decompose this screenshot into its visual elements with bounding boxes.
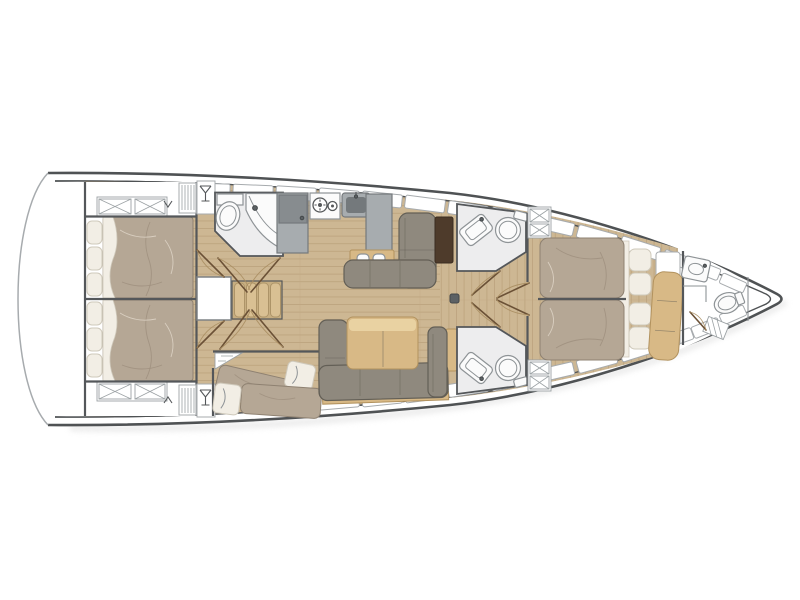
yacht-floorplan bbox=[0, 0, 800, 600]
berth-pillow-lower bbox=[212, 383, 241, 416]
yacht-floorplan-canvas bbox=[0, 0, 800, 600]
mast-post bbox=[450, 294, 459, 303]
pillow bbox=[629, 327, 651, 349]
stove-burner-icon bbox=[313, 198, 327, 212]
pillow bbox=[629, 273, 651, 295]
step bbox=[271, 283, 281, 317]
double-bed bbox=[87, 300, 193, 381]
saloon bbox=[319, 317, 458, 404]
aft-bulkheads bbox=[85, 182, 197, 416]
pillow bbox=[87, 302, 102, 325]
double-bed bbox=[87, 217, 193, 298]
storage-hatch bbox=[97, 197, 167, 216]
storage-hatch bbox=[528, 207, 551, 238]
louvered-cabinet bbox=[179, 385, 196, 415]
stove-burner-icon bbox=[328, 202, 337, 211]
basin bbox=[681, 256, 711, 283]
fridge-handle bbox=[300, 216, 304, 220]
pillow bbox=[87, 247, 102, 270]
transom-platform-edge bbox=[18, 173, 48, 425]
chart-table bbox=[435, 217, 453, 263]
stove bbox=[310, 193, 340, 219]
corridor bbox=[450, 294, 459, 303]
pillow bbox=[629, 249, 651, 271]
l-sofa-aft-arm bbox=[344, 260, 436, 288]
storage-hatch bbox=[97, 382, 167, 401]
louvered-cabinet bbox=[179, 183, 196, 213]
single-berth-lower bbox=[240, 383, 322, 419]
storage-hatch bbox=[528, 360, 551, 391]
engine-access-door bbox=[197, 277, 231, 320]
bed-mattress-starboard bbox=[540, 300, 624, 360]
galley-counter-right bbox=[366, 194, 392, 253]
pillow bbox=[87, 354, 102, 377]
pillow bbox=[87, 221, 102, 244]
dining-table bbox=[347, 317, 418, 369]
u-sofa-right-arm bbox=[428, 327, 447, 397]
faucet bbox=[354, 195, 357, 198]
bed-mattress-port bbox=[540, 238, 624, 298]
step bbox=[259, 283, 269, 317]
pillow bbox=[87, 273, 102, 296]
bench-seat bbox=[648, 271, 684, 361]
faucet bbox=[253, 206, 258, 211]
pillow bbox=[87, 328, 102, 351]
pillow bbox=[629, 303, 651, 325]
companionway-steps bbox=[232, 281, 282, 319]
